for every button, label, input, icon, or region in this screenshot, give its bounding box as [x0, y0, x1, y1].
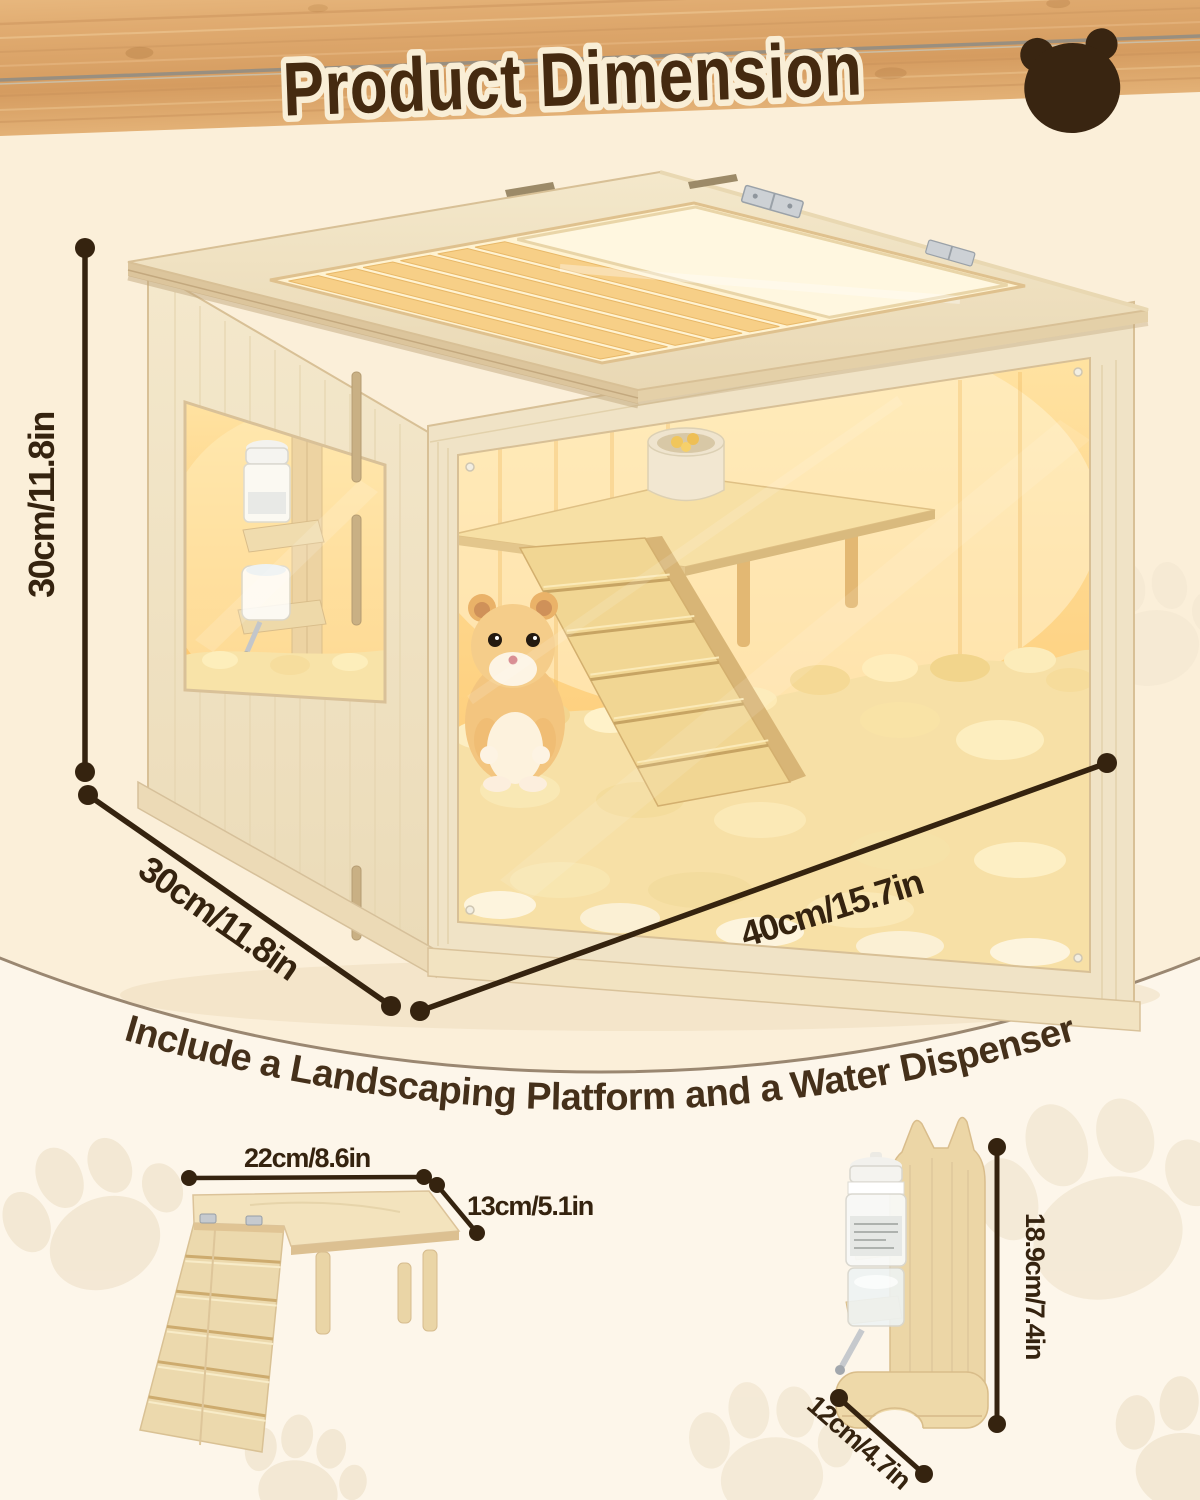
- platform-leg: [423, 1250, 437, 1331]
- food-bowl: [648, 428, 724, 501]
- ramp-hinge: [200, 1214, 216, 1223]
- platform-depth-label: 13cm/5.1in: [467, 1191, 593, 1221]
- platform-leg: [398, 1263, 411, 1323]
- ramp-hinge: [246, 1216, 262, 1225]
- platform-leg: [316, 1252, 330, 1334]
- platform-width-label: 22cm/8.6in: [244, 1143, 370, 1173]
- product-dimension-infographic: 30cm/11.8in 30cm/11.8in 40cm/15.7in Incl…: [0, 0, 1200, 1500]
- dispenser-height-label: 18.9cm/7.4in: [1020, 1213, 1050, 1359]
- water-dispenser-illustration: [835, 1118, 988, 1451]
- cage-height-label: 30cm/11.8in: [21, 412, 62, 598]
- infographic-canvas: 30cm/11.8in 30cm/11.8in 40cm/15.7in Incl…: [0, 0, 1200, 1500]
